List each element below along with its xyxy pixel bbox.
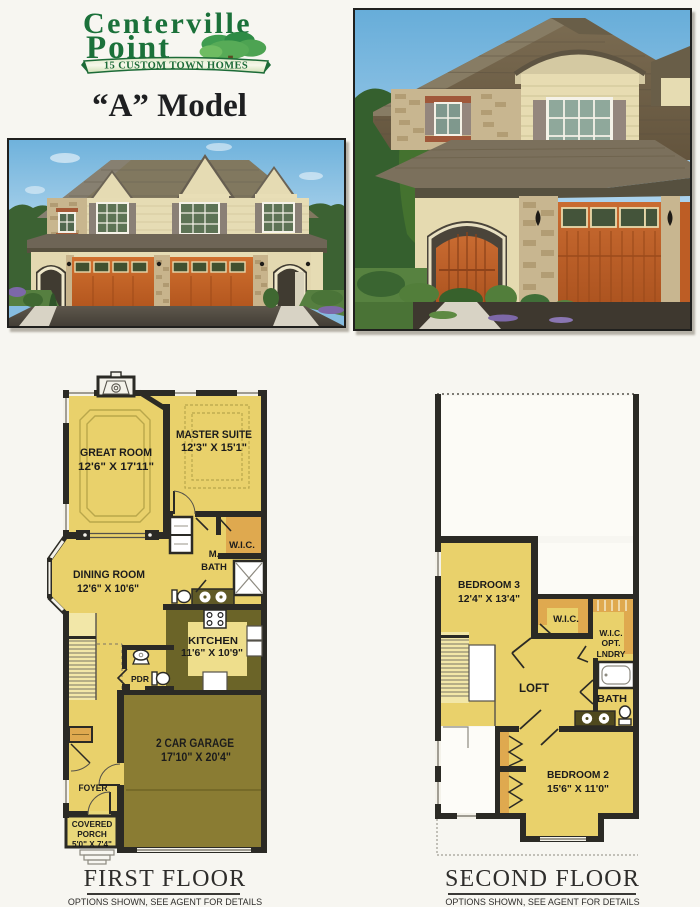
svg-text:M.: M. bbox=[209, 549, 220, 560]
svg-text:15'6" X 11'0": 15'6" X 11'0" bbox=[547, 783, 609, 795]
svg-text:12'6" X 10'6": 12'6" X 10'6" bbox=[77, 583, 139, 595]
svg-text:15 CUSTOM TOWN HOMES: 15 CUSTOM TOWN HOMES bbox=[104, 61, 248, 72]
svg-text:12'6" X 17'11": 12'6" X 17'11" bbox=[78, 461, 154, 473]
svg-text:BEDROOM 3: BEDROOM 3 bbox=[458, 579, 520, 591]
svg-text:11'6" X 10'9": 11'6" X 10'9" bbox=[181, 647, 243, 659]
svg-text:12'4" X 13'4": 12'4" X 13'4" bbox=[458, 593, 520, 605]
svg-text:BATH: BATH bbox=[201, 562, 227, 573]
svg-text:KITCHEN: KITCHEN bbox=[188, 635, 238, 647]
svg-text:COVERED: COVERED bbox=[72, 820, 113, 829]
svg-text:FOYER: FOYER bbox=[79, 783, 108, 794]
svg-text:PORCH: PORCH bbox=[77, 830, 107, 839]
svg-text:GREAT ROOM: GREAT ROOM bbox=[80, 447, 152, 459]
svg-text:LOFT: LOFT bbox=[519, 683, 549, 695]
svg-text:17'10" X 20'4": 17'10" X 20'4" bbox=[161, 752, 231, 764]
svg-text:5'0" X 7'4": 5'0" X 7'4" bbox=[72, 840, 112, 849]
svg-text:PDR: PDR bbox=[131, 674, 149, 684]
svg-text:BEDROOM 2: BEDROOM 2 bbox=[547, 769, 609, 781]
svg-text:W.I.C.: W.I.C. bbox=[553, 614, 579, 625]
svg-text:BATH: BATH bbox=[597, 693, 627, 705]
svg-text:12'3" X 15'1": 12'3" X 15'1" bbox=[181, 442, 247, 454]
svg-text:OPT.: OPT. bbox=[602, 638, 621, 648]
svg-text:W.I.C.: W.I.C. bbox=[229, 540, 255, 551]
svg-text:MASTER SUITE: MASTER SUITE bbox=[176, 429, 252, 441]
svg-text:LNDRY: LNDRY bbox=[597, 649, 626, 659]
svg-text:DINING ROOM: DINING ROOM bbox=[73, 569, 145, 581]
svg-text:2 CAR GARAGE: 2 CAR GARAGE bbox=[156, 738, 234, 750]
svg-text:W.I.C.: W.I.C. bbox=[599, 628, 622, 638]
